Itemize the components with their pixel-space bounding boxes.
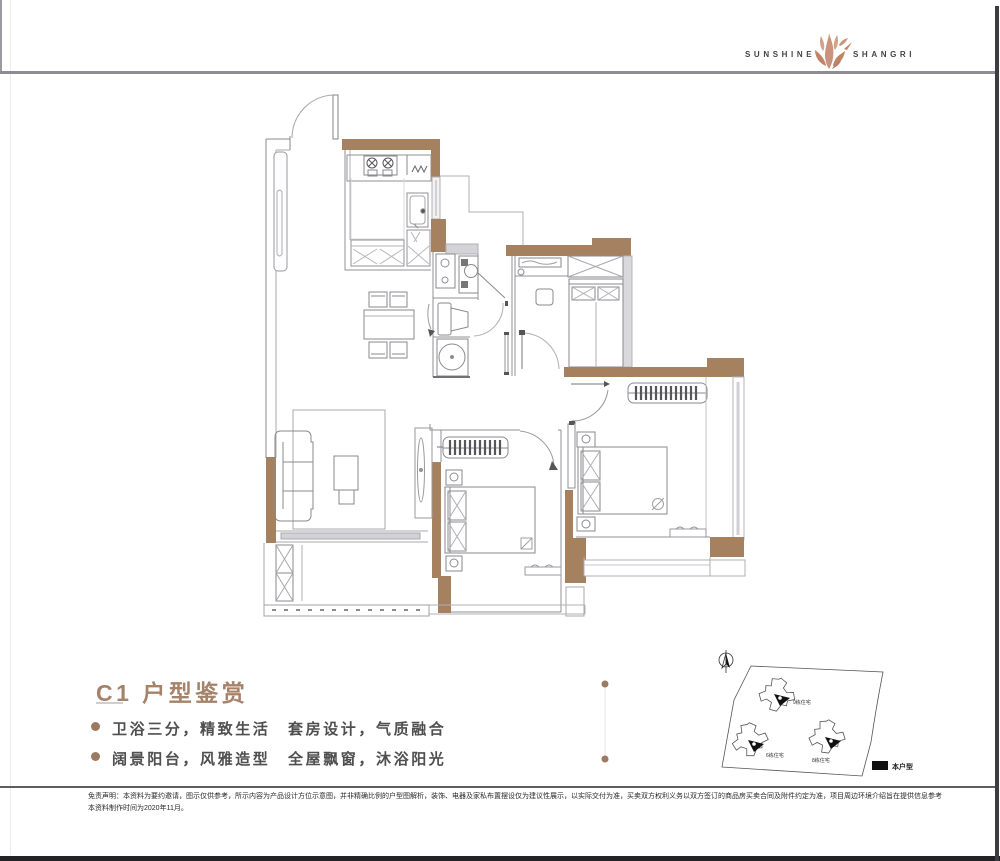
svg-text:9栋住宅: 9栋住宅 xyxy=(793,699,811,706)
svg-text:6栋住宅: 6栋住宅 xyxy=(766,752,784,759)
svg-text:本户型: 本户型 xyxy=(891,762,913,771)
svg-text:8栋住宅: 8栋住宅 xyxy=(812,757,830,764)
